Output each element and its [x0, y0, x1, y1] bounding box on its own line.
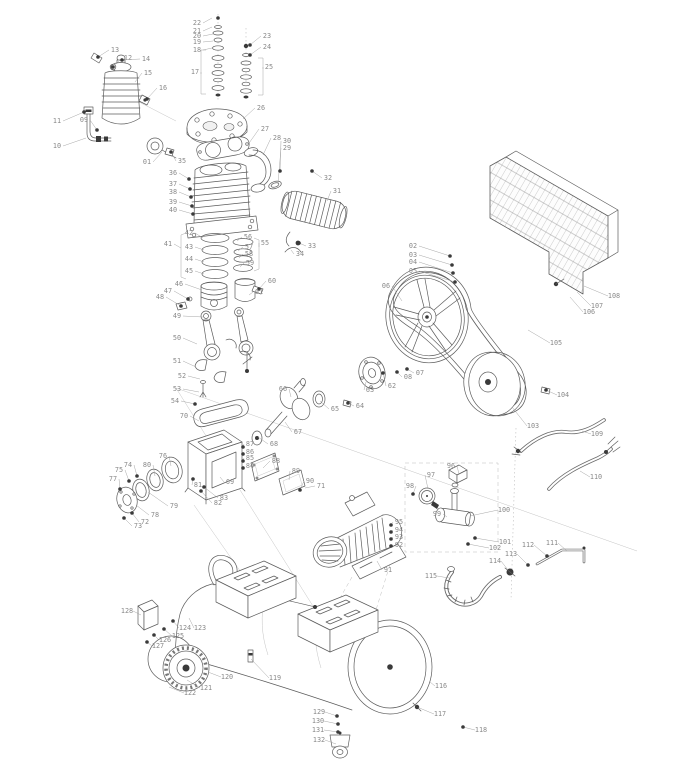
- part-callout-29: 29: [278, 144, 291, 184]
- part-number-30: 30: [283, 137, 291, 145]
- fastener-part-92: [389, 544, 393, 548]
- part-number-53: 53: [173, 385, 181, 393]
- part-number-08: 08: [404, 373, 412, 381]
- caster: [330, 732, 350, 759]
- part-callout-73: 73: [122, 516, 142, 530]
- part-number-74: 74: [124, 461, 132, 469]
- oil-plug-detail: [147, 138, 176, 158]
- part-callout-102: 102: [466, 542, 501, 552]
- part-number-104: 104: [557, 391, 569, 399]
- fastener-part-77: [118, 487, 122, 491]
- fastener-part-32: [310, 169, 314, 173]
- part-number-129: 129: [313, 708, 325, 716]
- part-number-04: 04: [409, 258, 417, 266]
- part-number-38: 38: [169, 188, 177, 196]
- fastener-part-02: [448, 254, 452, 258]
- part-number-84: 84: [246, 462, 254, 470]
- part-callout-120: 120: [208, 672, 233, 681]
- part-number-99: 99: [433, 510, 441, 518]
- part-number-100: 100: [498, 506, 510, 514]
- part-callout-67: 67: [285, 422, 302, 436]
- part-callout-27: 27: [247, 125, 269, 146]
- exploded-parts-diagram: 0102030405060708091011121314151617181920…: [0, 0, 686, 768]
- fastener-part-90: [298, 488, 302, 492]
- part-number-01: 01: [143, 158, 151, 166]
- part-number-121: 121: [200, 684, 212, 692]
- part-number-49: 49: [173, 312, 181, 320]
- fastener-part-24: [248, 53, 252, 57]
- fastener-part-85: [241, 459, 245, 463]
- part-callout-31: 31: [327, 187, 341, 201]
- valve-stack-right: [241, 28, 264, 100]
- part-callout-56: 56: [237, 233, 252, 241]
- part-callout-127: 127: [145, 640, 164, 650]
- part-number-39: 39: [169, 198, 177, 206]
- part-number-108: 108: [608, 292, 620, 300]
- part-number-89: 89: [292, 467, 300, 475]
- part-callout-84: 84: [241, 462, 254, 470]
- part-number-32: 32: [324, 174, 332, 182]
- part-number-67: 67: [294, 428, 302, 436]
- part-number-43: 43: [185, 243, 193, 251]
- part-number-77: 77: [109, 475, 117, 483]
- part-number-56: 56: [244, 233, 252, 241]
- part-number-42: 42: [185, 229, 193, 237]
- part-number-46: 46: [175, 280, 183, 288]
- part-number-116: 116: [435, 682, 447, 690]
- fastener-part-07: [405, 367, 409, 371]
- part-number-103: 103: [527, 422, 539, 430]
- fastener-part-05: [453, 280, 457, 284]
- part-number-41: 41: [164, 240, 172, 248]
- part-callout-49: 49: [173, 312, 203, 320]
- part-number-75: 75: [115, 466, 123, 474]
- fastener-part-72: [130, 511, 134, 515]
- part-callout-58: 58: [239, 250, 253, 258]
- part-number-11: 11: [53, 117, 61, 125]
- part-callout-108: 108: [584, 286, 620, 300]
- part-callout-44: 44: [185, 255, 204, 263]
- connecting-rods: [201, 308, 253, 361]
- part-number-09: 09: [80, 116, 88, 124]
- part-number-18: 18: [193, 46, 201, 54]
- part-number-59: 59: [246, 259, 254, 267]
- fastener-part-127: [145, 640, 149, 644]
- part-number-96: 96: [447, 462, 455, 470]
- part-callout-78: 78: [136, 505, 159, 519]
- fastener-part-95: [389, 523, 393, 527]
- part-number-16: 16: [159, 84, 167, 92]
- part-number-33: 33: [308, 242, 316, 250]
- part-callout-40: 40: [169, 206, 195, 216]
- part-callout-103: 103: [512, 407, 539, 430]
- part-number-115: 115: [425, 572, 437, 580]
- part-number-22: 22: [193, 19, 201, 27]
- part-number-76: 76: [159, 452, 167, 460]
- part-number-88: 88: [272, 457, 280, 465]
- part-number-12: 12: [124, 54, 132, 62]
- part-callout-09: 09: [80, 116, 99, 132]
- part-callout-26: 26: [243, 104, 265, 119]
- fastener-part-12: [111, 65, 115, 69]
- fastener-part-11: [82, 110, 86, 114]
- part-number-91: 91: [384, 566, 392, 574]
- part-callout-124: 124: [171, 619, 191, 632]
- part-callout-16: 16: [145, 84, 167, 101]
- part-number-119: 119: [269, 674, 281, 682]
- part-callout-77: 77: [109, 475, 122, 491]
- fastener-part-124: [171, 619, 175, 623]
- fastener-part-48: [179, 304, 183, 308]
- part-number-05: 05: [409, 267, 417, 275]
- fastener-part-03: [450, 263, 454, 267]
- cylinder-block: [186, 163, 258, 238]
- part-number-130: 130: [312, 717, 324, 725]
- part-number-110: 110: [590, 473, 602, 481]
- belt-guard: [490, 151, 618, 294]
- part-callout-87: 87: [241, 440, 254, 449]
- part-callout-30: 30: [278, 137, 291, 173]
- fastener-part-94: [389, 530, 393, 534]
- part-callout-35: 35: [169, 150, 186, 165]
- part-number-17: 17: [191, 68, 199, 76]
- part-callout-93: 93: [389, 533, 403, 541]
- part-number-61: 61: [255, 288, 263, 296]
- part-number-47: 47: [164, 287, 172, 295]
- part-number-62: 62: [388, 382, 396, 390]
- crankcase: [185, 430, 245, 504]
- part-callout-54: 54: [171, 397, 197, 406]
- part-callout-131: 131: [312, 726, 340, 734]
- part-number-28: 28: [273, 134, 281, 142]
- part-callout-46: 46: [175, 280, 202, 290]
- fastener-part-83: [202, 485, 206, 489]
- part-callout-21: 21: [193, 27, 212, 35]
- part-callout-115: 115: [425, 572, 449, 580]
- part-callout-10: 10: [53, 138, 86, 150]
- part-callout-43: 43: [185, 243, 204, 251]
- braided-hose: [444, 567, 500, 606]
- fastener-part-131: [336, 730, 340, 734]
- fastener-part-09: [95, 128, 99, 132]
- part-callout-55: 55: [259, 239, 269, 247]
- part-callout-53: 53: [173, 385, 199, 393]
- fastener-part-87: [241, 445, 245, 449]
- air-filter-assembly: [91, 53, 150, 124]
- part-number-111: 111: [546, 539, 558, 547]
- fastener-part-104: [544, 388, 548, 392]
- bracket-25: [258, 58, 263, 95]
- part-number-24: 24: [263, 43, 271, 51]
- part-number-10: 10: [53, 142, 61, 150]
- bracket-55: [254, 238, 259, 271]
- part-callout-107: 107: [577, 292, 603, 310]
- filter-nipple: [91, 53, 102, 63]
- part-number-48: 48: [156, 293, 164, 301]
- exhaust-elbow: [243, 146, 282, 193]
- part-number-97: 97: [427, 471, 435, 479]
- part-number-105: 105: [550, 339, 562, 347]
- part-number-21: 21: [193, 27, 201, 35]
- part-number-114: 114: [489, 557, 501, 565]
- part-callout-74: 74: [124, 461, 139, 478]
- part-number-58: 58: [245, 250, 253, 258]
- part-number-131: 131: [312, 726, 324, 734]
- flywheel: [377, 263, 476, 370]
- discharge-hoses: [512, 420, 620, 489]
- fastener-part-86: [241, 452, 245, 456]
- fastener-part-93: [389, 537, 393, 541]
- part-number-63: 63: [366, 386, 374, 394]
- part-callout-51: 51: [173, 357, 196, 367]
- fastener-part-117: [415, 705, 419, 709]
- part-callout-01: 01: [143, 152, 162, 166]
- part-number-60: 60: [268, 277, 276, 285]
- part-number-81: 81: [194, 481, 202, 489]
- pulley: [458, 347, 550, 421]
- part-number-55: 55: [261, 239, 269, 247]
- part-callout-28: 28: [263, 134, 281, 155]
- part-number-29: 29: [283, 144, 291, 152]
- fastener-part-36: [187, 177, 191, 181]
- part-number-07: 07: [416, 369, 424, 377]
- part-callout-34: 34: [291, 250, 304, 258]
- part-number-45: 45: [185, 267, 193, 275]
- fastener-part-64: [346, 401, 350, 405]
- part-number-128: 128: [121, 607, 133, 615]
- fastener-part-13: [96, 55, 100, 59]
- part-number-118: 118: [475, 726, 487, 734]
- part-number-92: 92: [395, 541, 403, 549]
- part-number-79: 79: [170, 502, 178, 510]
- fastener-part-112: [545, 554, 549, 558]
- part-number-40: 40: [169, 206, 177, 214]
- fastener-part-126: [152, 633, 156, 637]
- part-callout-50: 50: [173, 334, 197, 344]
- part-callout-118: 118: [461, 725, 487, 734]
- fastener-part-102: [466, 542, 470, 546]
- part-callout-86: 86: [241, 448, 254, 456]
- part-number-66: 66: [279, 385, 287, 393]
- part-callout-17: 17: [191, 68, 201, 76]
- part-callout-94: 94: [389, 526, 403, 534]
- part-number-51: 51: [173, 357, 181, 365]
- part-number-95: 95: [395, 518, 403, 526]
- part-number-25: 25: [265, 63, 273, 71]
- fastener-part-39: [190, 204, 194, 208]
- part-number-71: 71: [317, 482, 325, 490]
- fastener-part-129: [335, 714, 339, 718]
- part-number-125: 125: [172, 632, 184, 640]
- part-callout-52: 52: [178, 372, 200, 380]
- part-callout-32: 32: [310, 169, 332, 182]
- part-number-70: 70: [180, 412, 188, 420]
- fastener-part-35: [169, 150, 173, 154]
- part-callout-130: 130: [312, 717, 340, 726]
- part-number-112: 112: [522, 541, 534, 549]
- fastener-part-08: [395, 370, 399, 374]
- part-number-23: 23: [263, 32, 271, 40]
- fastener-part-84: [241, 466, 245, 470]
- part-number-06: 06: [382, 282, 390, 290]
- part-number-86: 86: [246, 448, 254, 456]
- fastener-part-47: [186, 297, 190, 301]
- part-number-94: 94: [395, 526, 403, 534]
- part-number-37: 37: [169, 180, 177, 188]
- part-callout-105: 105: [528, 330, 562, 347]
- part-number-127: 127: [152, 642, 164, 650]
- fastener-part-118: [461, 725, 465, 729]
- part-number-80: 80: [143, 461, 151, 469]
- fastener-part-101: [473, 536, 477, 540]
- part-number-34: 34: [296, 250, 304, 258]
- part-number-65: 65: [331, 405, 339, 413]
- fastener-part-16: [145, 97, 149, 101]
- part-number-90: 90: [306, 477, 314, 485]
- fastener-part-37: [188, 187, 192, 191]
- part-number-68: 68: [270, 440, 278, 448]
- part-number-93: 93: [395, 533, 403, 541]
- fastener-part-04: [451, 271, 455, 275]
- part-number-120: 120: [221, 673, 233, 681]
- fastener-part-98: [411, 492, 415, 496]
- part-number-72: 72: [141, 518, 149, 526]
- part-number-15: 15: [144, 69, 152, 77]
- part-number-107: 107: [591, 302, 603, 310]
- part-callout-116: 116: [430, 682, 447, 690]
- part-number-35: 35: [178, 157, 186, 165]
- part-number-123: 123: [194, 624, 206, 632]
- part-callout-08: 08: [395, 370, 412, 381]
- part-callout-45: 45: [185, 267, 204, 275]
- part-callout-33: 33: [297, 241, 316, 250]
- part-number-78: 78: [151, 511, 159, 519]
- part-callout-123: 123: [189, 618, 206, 632]
- fastener-part-33: [297, 241, 301, 245]
- part-number-44: 44: [185, 255, 193, 263]
- bracket-17: [201, 50, 206, 94]
- fastener-part-54: [193, 402, 197, 406]
- fastener-part-113: [526, 563, 530, 567]
- part-number-13: 13: [111, 46, 119, 54]
- fastener-part-40: [191, 212, 195, 216]
- part-callout-13: 13: [96, 46, 119, 59]
- part-number-14: 14: [142, 55, 150, 63]
- part-number-50: 50: [173, 334, 181, 342]
- part-callout-41: 41: [164, 240, 181, 248]
- part-callout-100: 100: [470, 506, 510, 516]
- part-number-54: 54: [171, 397, 179, 405]
- valve-stack-left: [201, 14, 224, 100]
- part-number-31: 31: [333, 187, 341, 195]
- fastener-part-82: [199, 489, 203, 493]
- diagram-canvas: 0102030405060708091011121314151617181920…: [0, 0, 686, 768]
- fastener-part-73: [122, 516, 126, 520]
- part-callout-97: 97: [425, 471, 435, 489]
- part-callout-113: 113: [505, 550, 530, 567]
- part-number-109: 109: [591, 430, 603, 438]
- fastener-part-74: [135, 474, 139, 478]
- part-number-113: 113: [505, 550, 517, 558]
- fastener-part-23: [248, 43, 252, 47]
- part-number-02: 02: [409, 242, 417, 250]
- part-callout-110: 110: [580, 471, 602, 481]
- part-number-27: 27: [261, 125, 269, 133]
- part-callout-117: 117: [415, 705, 446, 718]
- fastener-part-38: [189, 195, 193, 199]
- fastener-part-75: [127, 479, 131, 483]
- part-number-132: 132: [313, 736, 325, 744]
- part-callout-25: 25: [263, 63, 273, 71]
- part-callout-59: 59: [240, 259, 254, 267]
- part-number-98: 98: [406, 482, 414, 490]
- fastener-part-14: [120, 58, 124, 62]
- part-number-73: 73: [134, 522, 142, 530]
- part-callout-98: 98: [406, 482, 416, 496]
- part-number-87: 87: [246, 440, 254, 448]
- part-callout-112: 112: [522, 541, 549, 558]
- crankcase-gasket: [194, 400, 249, 427]
- part-number-102: 102: [489, 544, 501, 552]
- part-callout-95: 95: [389, 518, 403, 527]
- part-number-64: 64: [356, 402, 364, 410]
- part-number-124: 124: [179, 624, 191, 632]
- part-number-69: 69: [226, 478, 234, 486]
- part-number-117: 117: [434, 710, 446, 718]
- part-callout-79: 79: [148, 492, 178, 510]
- part-number-83: 83: [220, 494, 228, 502]
- fastener-part-30: [278, 169, 282, 173]
- fastener-part-130: [336, 722, 340, 726]
- fastener-part-62: [381, 371, 385, 375]
- part-number-26: 26: [257, 104, 265, 112]
- fastener-part-125: [162, 627, 166, 631]
- part-number-36: 36: [169, 169, 177, 177]
- part-callout-47: 47: [164, 287, 190, 301]
- part-number-122: 122: [184, 689, 196, 697]
- part-callout-22: 22: [193, 18, 212, 27]
- part-number-52: 52: [178, 372, 186, 380]
